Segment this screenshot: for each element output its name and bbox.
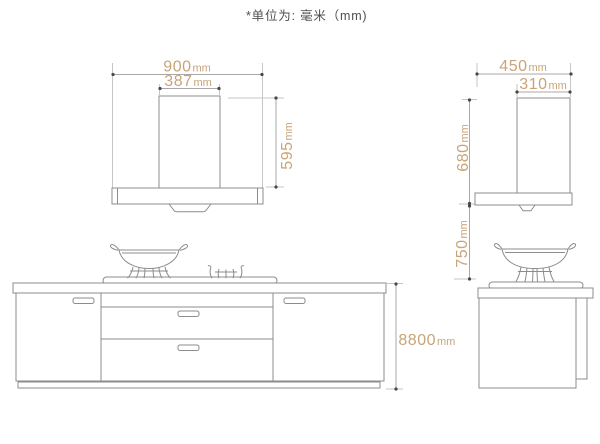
dim-unit: mm [437,336,455,348]
dim-value: 750 [454,240,471,268]
dimension-endpoint [158,87,161,90]
dim-value: 680 [455,144,472,172]
dimension-endpoint [274,96,277,99]
dim-unit: mm [193,63,211,75]
cabinet-front-view: 8800 mm [13,245,455,391]
dimension-endpoint [468,204,471,207]
cabinet-side-panel [479,298,576,388]
dim-unit: mm [549,80,567,92]
dim-hood-side-chimney-depth: 310 mm [515,76,571,94]
grate-prong-tip [241,266,244,267]
dim-unit: mm [529,62,547,74]
dim-value: 387 [164,73,192,90]
dimension-endpoint [260,73,263,76]
wok-bowl [502,249,568,269]
dimension-endpoint [394,387,397,390]
dimension-endpoint [394,282,397,285]
dimension-endpoint [468,277,471,280]
hood-chimney-side [517,98,570,193]
hood-vent-front [169,204,211,212]
burner-leg [549,267,554,282]
burner-leg [537,269,538,282]
dimension-endpoint [569,72,572,75]
hood-knob-side [519,205,535,211]
dim-unit: mm [194,77,212,89]
dimension-endpoint [568,90,571,93]
dim-unit: mm [458,220,470,238]
cabinet-side-view [478,244,593,388]
wok-handle [568,244,576,250]
dim-unit: mm [283,122,295,140]
dim-hood-side-height: 680 mm [455,98,477,205]
diagram-svg: *单位为: 毫米（mm) 900 mm 387 mm [0,0,600,444]
dim-hood-to-cooktop-clearance: 750 mm [454,204,476,280]
burner-leg [533,269,534,282]
wok-handle [494,244,502,250]
dimension-endpoint [468,98,471,101]
dimension-endpoint [217,87,220,90]
countertop-front [13,283,386,293]
burner-leg [543,268,545,282]
dimension-endpoint [475,72,478,75]
hood-chimney-front [159,96,220,188]
countertop-side [478,288,593,298]
unit-note-text: *单位为: 毫米（mm) [246,8,367,23]
dim-unit: mm [459,124,471,142]
wok-front [110,245,187,279]
dim-value: 8800 [398,332,436,349]
kitchen-dimension-diagram: *单位为: 毫米（mm) 900 mm 387 mm [0,0,600,444]
dim-value: 450 [499,58,527,75]
grate-prong [218,269,219,278]
burner-grate-front [208,266,244,279]
dim-cabinet-height: 8800 mm [386,282,455,390]
burner-leg [525,268,527,282]
cabinet-kickboard [18,382,380,388]
dimension-endpoint [515,90,518,93]
burner-leg [516,267,521,282]
hood-side-view: 450 mm 310 mm 680 mm [454,58,573,281]
wok-handle [179,245,188,251]
dim-hood-side-depth: 450 mm [475,58,572,76]
dim-hood-front-chimney-width: 387 mm [158,73,220,95]
grate-prong [233,269,234,278]
dimension-endpoint [274,185,277,188]
cabinet-carcass-front [16,293,384,381]
unit-note: *单位为: 毫米（mm) [246,8,367,23]
hood-body-side [475,193,572,205]
wok-handle [110,245,119,251]
hood-front-view: 900 mm 387 mm 595 mm [111,59,296,212]
dim-value: 310 [519,76,547,93]
grate-prong-tip [208,266,211,267]
dimension-endpoint [111,73,114,76]
dim-value: 595 [279,142,296,170]
cabinet-back-panel-side [576,298,587,379]
hood-body-front [112,188,263,204]
wok-side [494,244,575,282]
